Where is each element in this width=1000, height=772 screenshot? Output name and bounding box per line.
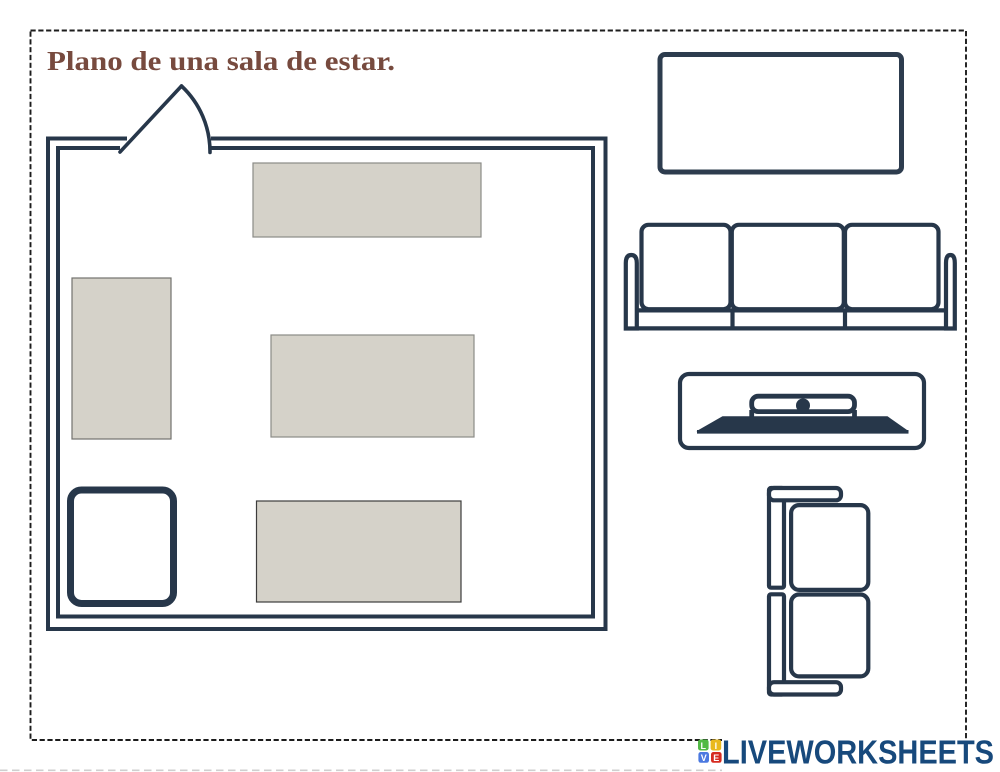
svg-text:L: L xyxy=(701,741,707,751)
svg-text:V: V xyxy=(701,753,707,763)
svg-text:E: E xyxy=(713,753,719,763)
svg-text:Plano de una sala de estar.: Plano de una sala de estar. xyxy=(47,45,395,76)
svg-text:I: I xyxy=(715,741,718,751)
svg-text:LIVEWORKSHEETS: LIVEWORKSHEETS xyxy=(722,734,994,771)
